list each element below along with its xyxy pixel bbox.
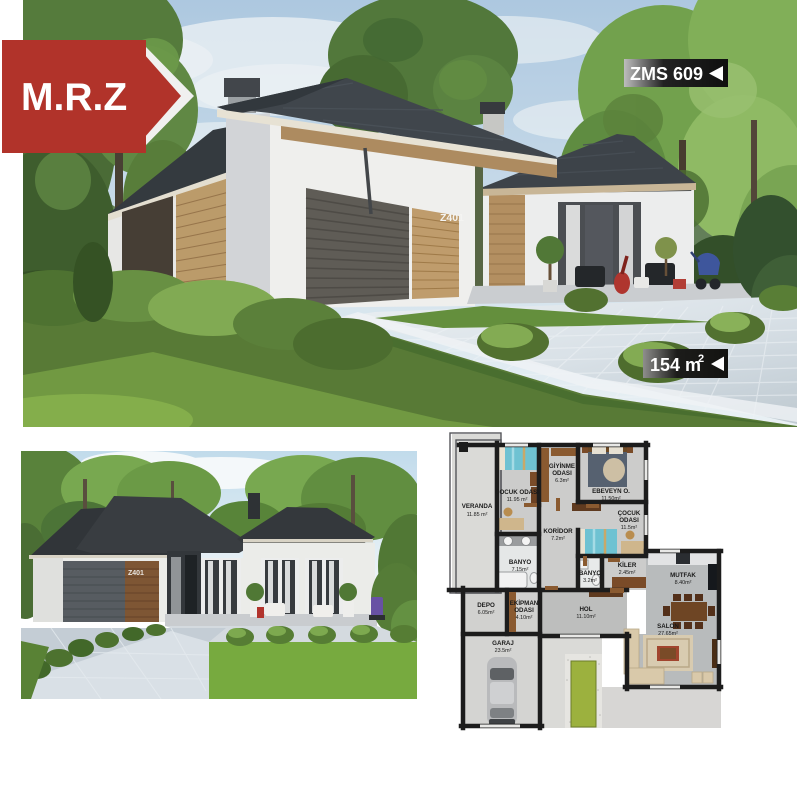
svg-text:2.45m²: 2.45m² [619, 570, 636, 576]
svg-text:VERANDA: VERANDA [462, 503, 493, 510]
svg-text:11.85 m²: 11.85 m² [467, 512, 488, 518]
svg-text:ODASI: ODASI [552, 470, 572, 477]
svg-text:KORİDOR: KORİDOR [543, 528, 573, 535]
svg-text:23.5m²: 23.5m² [495, 648, 512, 654]
svg-text:DEPO: DEPO [477, 602, 495, 609]
svg-text:7.2m²: 7.2m² [551, 536, 565, 542]
svg-text:MUTFAK: MUTFAK [670, 572, 696, 579]
svg-text:ZMS 609: ZMS 609 [630, 64, 703, 84]
svg-text:BANYO: BANYO [579, 570, 602, 577]
svg-text:BANYO: BANYO [509, 559, 532, 566]
svg-text:7.15m²: 7.15m² [512, 567, 529, 573]
svg-text:8.40m²: 8.40m² [675, 580, 692, 586]
svg-text:EBEVEYN O.: EBEVEYN O. [592, 488, 630, 495]
svg-text:HOL: HOL [579, 606, 592, 613]
svg-text:3.2m²: 3.2m² [583, 578, 597, 584]
svg-text:11.95 m²: 11.95 m² [507, 497, 528, 503]
svg-text:11.50m²: 11.50m² [601, 496, 621, 502]
svg-text:11.10m²: 11.10m² [576, 614, 596, 620]
svg-text:27.65m²: 27.65m² [658, 631, 678, 637]
svg-text:KİLER: KİLER [618, 562, 637, 569]
svg-text:ÇOCUK: ÇOCUK [618, 510, 641, 517]
svg-text:GİYİNME: GİYİNME [549, 463, 575, 470]
svg-text:ODASI: ODASI [619, 517, 639, 524]
svg-text:154 m: 154 m [650, 355, 701, 375]
svg-text:M.R.Z: M.R.Z [21, 76, 127, 119]
svg-text:ODASI: ODASI [514, 607, 534, 614]
svg-text:4.10m²: 4.10m² [516, 615, 533, 621]
svg-text:ÇOCUK ODASI: ÇOCUK ODASI [495, 489, 539, 496]
svg-text:2: 2 [698, 353, 704, 365]
svg-text:6.3m²: 6.3m² [555, 478, 569, 484]
svg-text:Z401: Z401 [128, 570, 144, 577]
svg-text:EKİPMAN: EKİPMAN [510, 600, 539, 607]
svg-text:6.05m²: 6.05m² [478, 610, 495, 616]
svg-text:11.5m²: 11.5m² [621, 525, 638, 531]
svg-text:GARAJ: GARAJ [492, 640, 514, 647]
svg-text:Z401: Z401 [440, 212, 464, 224]
svg-text:SALON: SALON [657, 623, 679, 630]
